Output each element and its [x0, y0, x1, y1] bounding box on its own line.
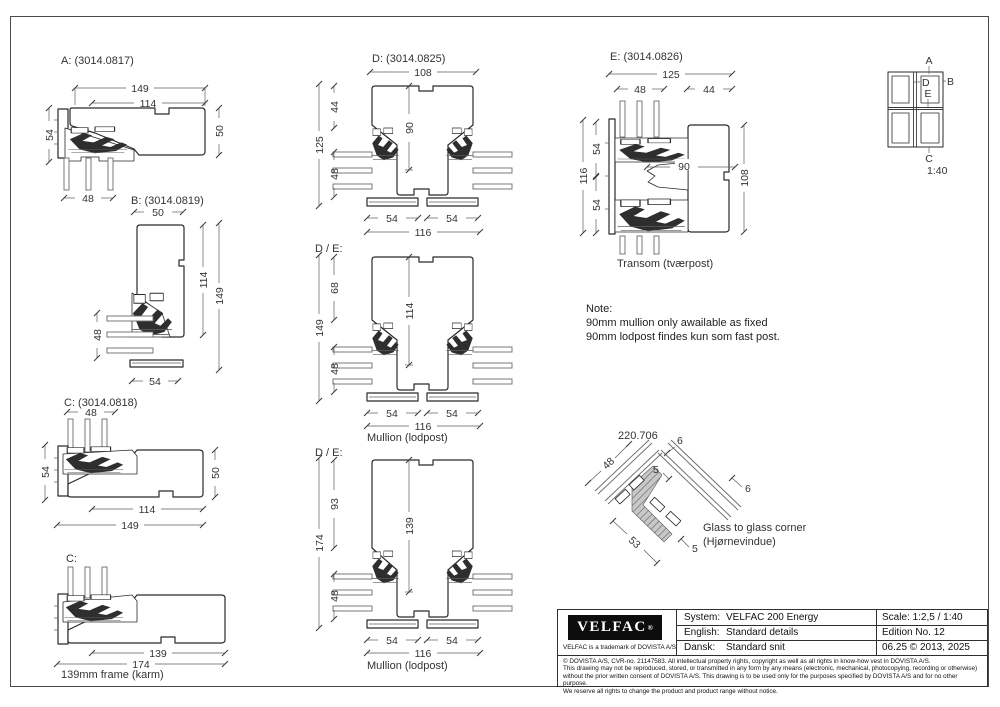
mullion-post-profile	[372, 460, 473, 617]
keyplan-label-c: C	[925, 153, 933, 165]
glass-pane	[473, 590, 512, 595]
glass-pane	[85, 419, 90, 452]
glass-pane	[333, 574, 372, 579]
dim-6-right: 6	[745, 483, 751, 495]
titleblock-divider	[676, 625, 987, 626]
detail-c: C: (3014.0818) 48 54 50 114 149	[33, 396, 248, 551]
glass-pane	[333, 152, 372, 157]
glass-pane	[473, 168, 512, 173]
glass-pane	[473, 184, 512, 189]
note-title: Note:	[586, 302, 780, 316]
detail-c2-caption: 139mm frame (karm)	[61, 669, 164, 681]
dim-48: 48	[85, 407, 97, 419]
dim-44: 44	[703, 84, 715, 96]
dim-48: 48	[92, 329, 104, 341]
dim-108: 108	[739, 169, 751, 187]
spacer-block	[615, 489, 630, 504]
legal-line: We reserve all rights to change the prod…	[563, 688, 982, 695]
keyplan-label-b: B	[947, 76, 954, 88]
dim-114: 114	[139, 504, 156, 516]
dim-48: 48	[634, 84, 646, 96]
dim-54-right: 54	[446, 408, 458, 420]
note-line-en: 90mm mullion only awailable as fixed	[586, 316, 780, 330]
glass-pane	[473, 363, 512, 368]
alu-outer-strip	[609, 119, 615, 234]
keyplan-pane	[892, 76, 909, 103]
dim-114: 114	[404, 302, 416, 319]
dim-6-top: 6	[677, 435, 683, 447]
dim-149: 149	[214, 287, 226, 305]
glass-pane	[473, 379, 512, 384]
title-block: VELFAC® VELFAC is a trademark of DOVISTA…	[557, 609, 988, 687]
legal-line: This drawing may not be reproduced, stor…	[563, 665, 982, 672]
dim-54: 54	[149, 376, 161, 388]
dim-68: 68	[329, 282, 341, 294]
glass-pane	[64, 158, 69, 190]
dim-54: 54	[44, 129, 56, 141]
glass-pane	[68, 419, 73, 452]
glass-pane	[86, 158, 91, 190]
velfac-logo-text: VELFAC	[577, 619, 647, 636]
edition-text: Edition No. 12	[882, 627, 945, 638]
titleblock-divider	[676, 610, 677, 655]
keyplan: A D B E C 1:40	[880, 50, 992, 182]
dim-48: 48	[600, 455, 617, 472]
dim-116: 116	[578, 167, 590, 184]
dim-54-left: 54	[386, 408, 398, 420]
trademark-line: VELFAC is a trademark of DOVISTA A/S	[563, 644, 676, 651]
note-line-da: 90mm lodpost findes kun som fast post.	[586, 330, 780, 344]
dim-125: 125	[314, 136, 326, 154]
glass-pane	[473, 574, 512, 579]
detail-de1: D / E: 68 48 149 114 54 54 116 Mullion (…	[305, 240, 530, 445]
detail-e-label: E: (3014.0826)	[610, 51, 683, 63]
dim-54-upper: 54	[591, 143, 603, 155]
dim-54: 54	[40, 466, 52, 478]
glass-pane	[107, 316, 153, 321]
detail-de1-caption: Mullion (lodpost)	[367, 432, 448, 444]
spacer-block	[650, 497, 665, 512]
note-block: Note: 90mm mullion only awailable as fix…	[586, 302, 780, 344]
dim-149: 149	[131, 83, 149, 95]
dim-53: 53	[626, 534, 643, 551]
glass-pane	[620, 101, 625, 137]
mullion-post-profile	[372, 86, 473, 195]
dim-48: 48	[329, 590, 341, 602]
english-key: English:	[684, 627, 720, 638]
detail-d: D: (3014.0825) 108 44 48 125 90 54 54 11…	[305, 48, 530, 240]
dim-90: 90	[404, 122, 416, 134]
glass-pane	[85, 567, 90, 598]
dim-48: 48	[329, 363, 341, 375]
detail-c2-label: C:	[66, 553, 77, 565]
glass-pane	[473, 606, 512, 611]
titleblock-divider	[876, 610, 877, 655]
system-value: VELFAC 200 Energy	[726, 612, 818, 623]
glass-pane	[333, 347, 372, 352]
glass-pane	[107, 332, 153, 337]
dim-108: 108	[414, 67, 432, 79]
dim-50: 50	[214, 125, 226, 137]
titleblock-divider	[676, 640, 987, 641]
dim-5-top: 5	[653, 464, 659, 476]
dim-50: 50	[210, 467, 222, 479]
glass-pane	[333, 184, 372, 189]
glass-pane	[637, 101, 642, 137]
glass-pane	[473, 347, 512, 352]
glass-pane	[637, 236, 642, 254]
system-key: System:	[684, 612, 720, 623]
detail-c2: C: 139 174 139mm frame (karm)	[33, 550, 261, 692]
glass-pane	[620, 236, 625, 254]
glass-pane	[102, 567, 107, 598]
dim-54-lower: 54	[591, 199, 603, 211]
dim-93: 93	[329, 498, 341, 510]
glass-pane	[333, 379, 372, 384]
dim-90: 90	[678, 161, 690, 173]
keyplan-label-e: E	[924, 88, 931, 100]
corner-label: 220.706	[618, 430, 658, 442]
date-copyright-text: 06.25 © 2013, 2025	[882, 642, 970, 653]
glass-pane	[333, 606, 372, 611]
sill-plate	[130, 360, 183, 367]
dim-149: 149	[121, 520, 139, 532]
dim-139: 139	[404, 517, 416, 535]
glass-pane	[473, 152, 512, 157]
detail-a: A: (3014.0817) 149 114 48 54 50	[35, 48, 247, 218]
detail-c-label: C: (3014.0818)	[64, 397, 137, 409]
dim-139: 139	[149, 648, 167, 660]
detail-a-label: A: (3014.0817)	[61, 55, 134, 67]
glass-pane	[654, 101, 659, 137]
dim-44: 44	[329, 101, 341, 113]
dim-50: 50	[152, 207, 164, 219]
legal-text: © DOVISTA A/S, CVR-no. 21147583. All int…	[558, 655, 987, 686]
glass-pane	[68, 567, 73, 598]
detail-e: E: (3014.0826) 125 48 44 90 108 54 54 11…	[563, 48, 768, 276]
dansk-key: Dansk:	[684, 642, 715, 653]
dim-114: 114	[198, 271, 210, 288]
dim-149: 149	[314, 319, 326, 337]
corner-caption-da: (Hjørnevindue)	[703, 536, 776, 548]
keyplan-pane	[892, 113, 909, 143]
dim-125: 125	[662, 69, 680, 81]
glass-pane	[107, 348, 153, 353]
glass-pane	[654, 236, 659, 254]
velfac-logo: VELFAC®	[568, 615, 662, 640]
dim-54-right: 54	[446, 635, 458, 647]
detail-corner: 220.706 48 53 5 6 6 5 Glass to glass cor…	[585, 425, 800, 575]
detail-de1-label: D / E:	[315, 243, 343, 255]
detail-b-label: B: (3014.0819)	[131, 195, 204, 207]
dansk-value: Standard snit	[726, 642, 785, 653]
glass-pane	[108, 158, 113, 190]
wood-frame-profile	[688, 125, 729, 232]
detail-de2: D / E: 93 48 174 139 54 54 116 Mullion (…	[305, 445, 530, 677]
dim-48: 48	[329, 168, 341, 180]
dim-54-left: 54	[386, 213, 398, 225]
dim-174: 174	[314, 534, 326, 552]
detail-d-label: D: (3014.0825)	[372, 53, 445, 65]
dim-5-bottom: 5	[692, 543, 698, 555]
keyplan-scale: 1:40	[927, 165, 948, 177]
detail-e-caption: Transom (tværpost)	[617, 258, 713, 270]
detail-b: B: (3014.0819) 50 48 114 149 54	[80, 195, 240, 397]
scale-text: Scale: 1:2,5 / 1:40	[882, 612, 963, 623]
detail-de2-caption: Mullion (lodpost)	[367, 660, 448, 672]
english-value: Standard details	[726, 627, 798, 638]
corner-caption-en: Glass to glass corner	[703, 522, 807, 534]
legal-line: without the prior written consent of DOV…	[563, 673, 982, 688]
dim-54-left: 54	[386, 635, 398, 647]
keyplan-pane	[921, 113, 939, 143]
dim-116: 116	[415, 648, 432, 660]
spacer-block	[666, 511, 681, 526]
keyplan-label-a: A	[925, 55, 932, 67]
dim-54-right: 54	[446, 213, 458, 225]
dim-116: 116	[415, 227, 432, 239]
registered-mark: ®	[648, 624, 653, 632]
legal-line: © DOVISTA A/S, CVR-no. 21147583. All int…	[563, 658, 982, 665]
